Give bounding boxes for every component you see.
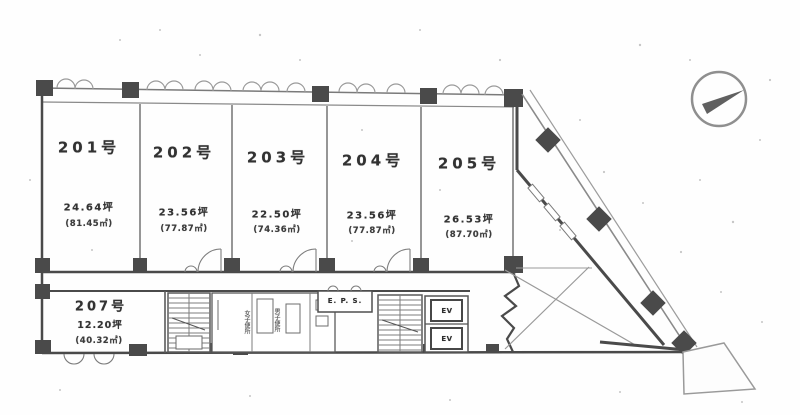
elevator-shafts [425, 296, 468, 352]
room-203-number: 203号 [247, 147, 309, 168]
room-204-area-tsubo: 23.56坪 [347, 207, 398, 222]
floor-plan-scan: 201号 24.64坪 (81.45㎡) 202号 23.56坪 (77.87㎡… [0, 0, 800, 415]
room-205-number: 205号 [438, 153, 500, 174]
floor-plan-drawing [0, 0, 800, 415]
room-202-number: 202号 [153, 142, 215, 163]
room-204-area-sqm: (77.87㎡) [348, 224, 395, 236]
room-204-number: 204号 [342, 150, 404, 171]
room-203-area-sqm: (74.36㎡) [253, 223, 300, 235]
cross-braced-void [502, 267, 637, 352]
annex-outline [683, 343, 755, 394]
toilet-label-women: 女子便所 [243, 310, 249, 334]
room-201-number: 201号 [58, 137, 120, 158]
room-205-area-sqm: (87.70㎡) [445, 228, 492, 240]
wing-columns [535, 127, 696, 355]
room-207-area-tsubo: 12.20坪 [77, 317, 123, 331]
toilet-label-men: 男子便所 [273, 308, 279, 332]
room-203-area-tsubo: 22.50坪 [252, 206, 303, 221]
diagonal-wing [517, 90, 755, 394]
room-202-area-sqm: (77.87㎡) [160, 222, 207, 234]
staircase-east [378, 295, 422, 352]
room-201-area-sqm: (81.45㎡) [65, 217, 112, 229]
north-compass-icon [692, 72, 746, 126]
room-207-number: 207号 [75, 296, 127, 315]
staircase-west [168, 293, 210, 352]
room-202-area-tsubo: 23.56坪 [159, 204, 210, 219]
elevator-label-1: EV [441, 307, 452, 315]
elevator-label-2: EV [441, 335, 452, 343]
room-201-area-tsubo: 24.64坪 [64, 199, 115, 214]
room-205-area-tsubo: 26.53坪 [444, 211, 495, 226]
room-207-area-sqm: (40.32㎡) [75, 334, 122, 346]
eps-label: E. P. S. [328, 297, 363, 305]
